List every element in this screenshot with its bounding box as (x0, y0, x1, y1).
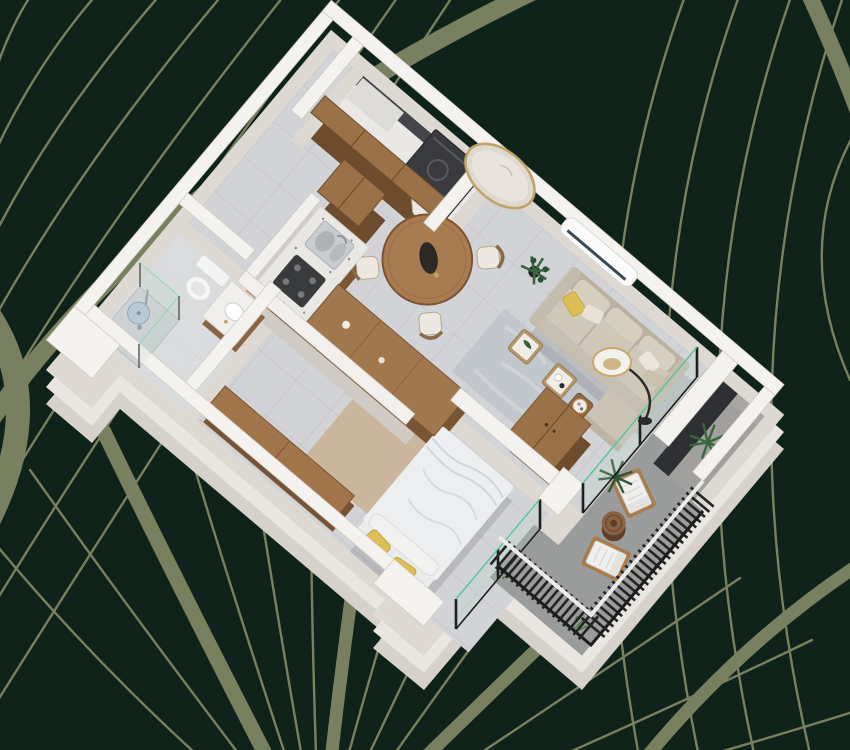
dining-chair (476, 245, 503, 269)
dining-chair (418, 312, 442, 339)
floorplan-scene (0, 0, 850, 750)
